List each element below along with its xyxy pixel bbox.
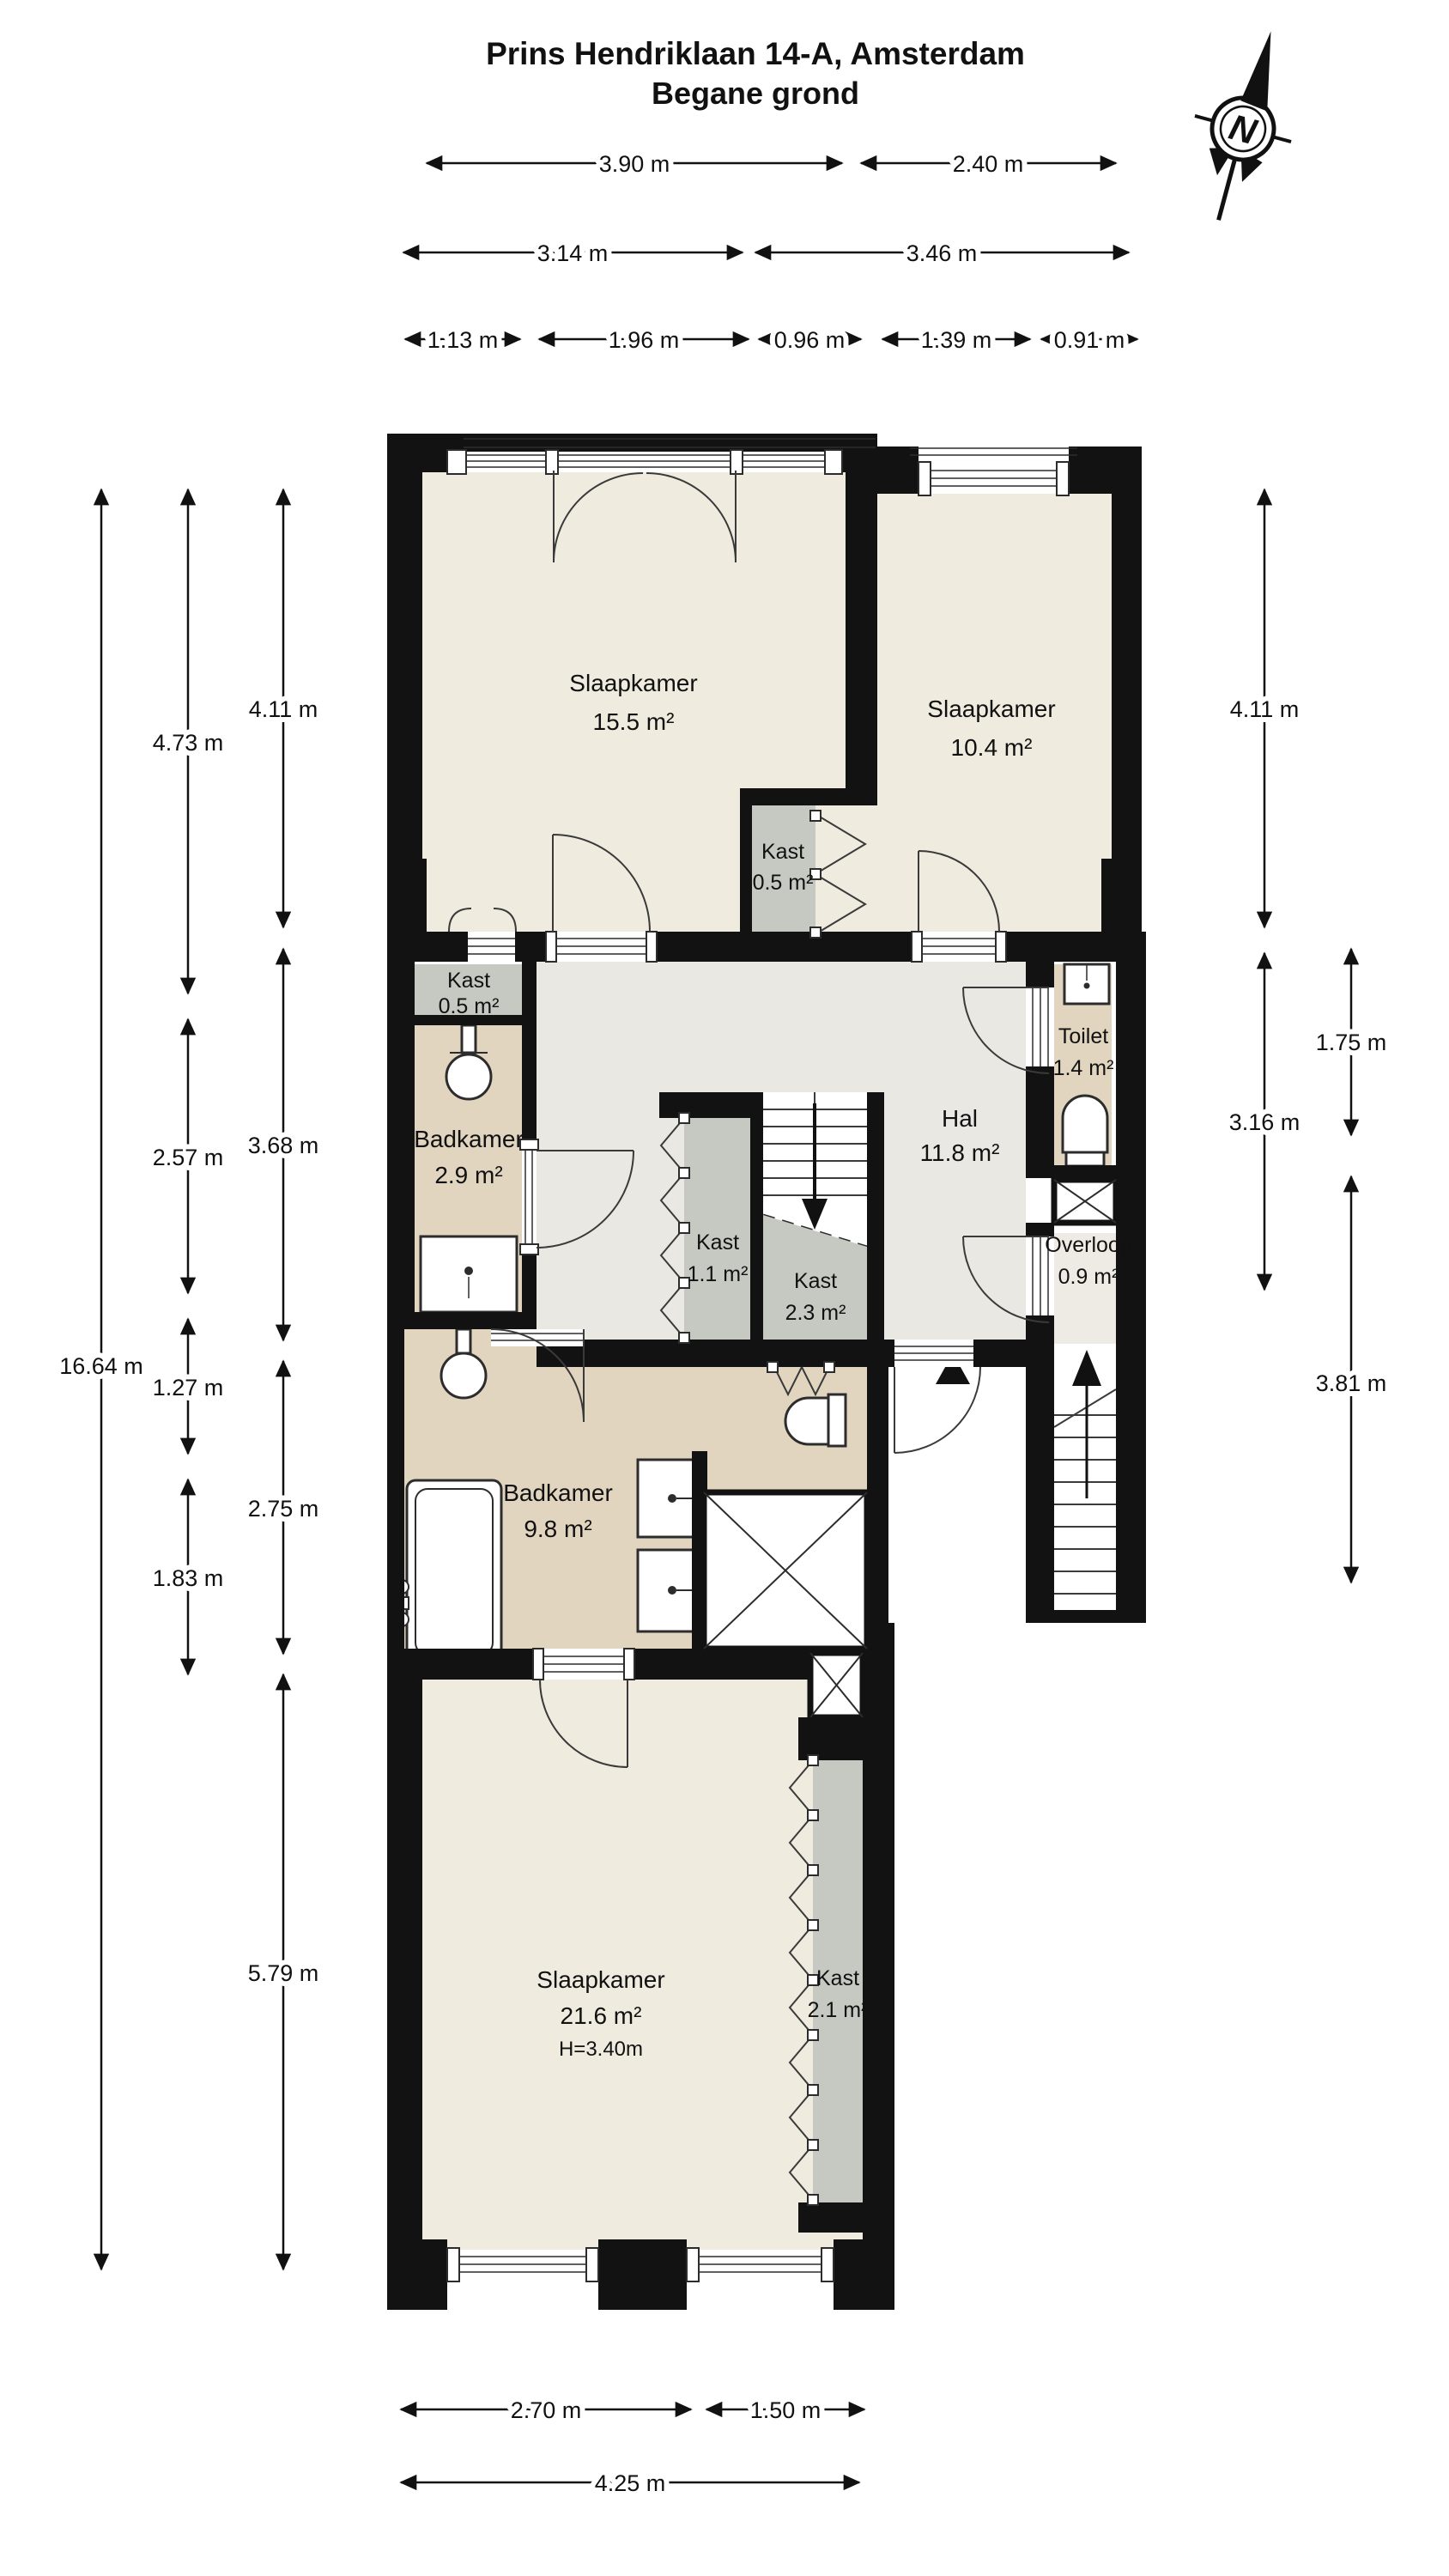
bathtub (407, 1480, 501, 1663)
label-kast-21: Kast (816, 1966, 859, 1990)
floor-kast-midden (752, 805, 815, 932)
label-toilet-area: 1.4 m² (1053, 1056, 1114, 1080)
dim-1664: 16.64 m (59, 1353, 143, 1379)
dim-314: 3.14 m (537, 240, 609, 266)
dim-390: 3.90 m (599, 151, 670, 177)
label-kast-midden-area: 0.5 m² (753, 871, 814, 895)
toilet-cistern (1066, 1152, 1104, 1166)
dim-139: 1.39 m (921, 327, 992, 353)
dim-183: 1.83 m (153, 1565, 224, 1591)
basin-bk98 (441, 1353, 486, 1398)
dim-411-r: 4.11 m (1230, 696, 1300, 722)
label-slaapkamer-rechts: Slaapkamer (927, 696, 1055, 722)
dim-346: 3.46 m (906, 240, 978, 266)
label-toilet: Toilet (1058, 1024, 1108, 1048)
label-kast-21-area: 2.1 m² (808, 1998, 869, 2022)
dim-196: 1.96 m (609, 327, 680, 353)
toilet-bowl (1063, 1096, 1107, 1152)
dim-270: 2.70 m (511, 2397, 582, 2423)
floor-kast-11 (684, 1118, 750, 1340)
dim-381: 3.81 m (1316, 1370, 1387, 1396)
toilet-bk98-cistern (828, 1394, 846, 1446)
label-kast-midden: Kast (761, 840, 804, 864)
dim-411-l: 4.11 m (249, 696, 318, 722)
dim-127: 1.27 m (153, 1375, 224, 1400)
dim-473: 4.73 m (153, 730, 224, 756)
dim-240: 2.40 m (953, 151, 1024, 177)
toilet-bk98 (785, 1398, 828, 1444)
page-subtitle: Begane grond (652, 76, 859, 111)
label-slaapkamer-rechts-area: 10.4 m² (951, 734, 1033, 761)
dim-150: 1.50 m (750, 2397, 822, 2423)
dim-113: 1.13 m (427, 327, 499, 353)
dim-368: 3.68 m (248, 1133, 319, 1158)
title-block: Prins Hendriklaan 14-A, Amsterdam Begane… (486, 36, 1025, 111)
label-slaapkamer-voor: Slaapkamer (569, 670, 697, 696)
dim-257: 2.57 m (153, 1145, 224, 1170)
label-kast-11-area: 1.1 m² (688, 1262, 749, 1286)
label-overloop-area: 0.9 m² (1058, 1265, 1119, 1289)
label-overloop: Overloop (1045, 1233, 1131, 1257)
basin-stem-bk29 (462, 1025, 476, 1053)
label-badkamer-groot-area: 9.8 m² (524, 1516, 591, 1542)
label-kast-links-area: 0.5 m² (439, 994, 500, 1018)
label-slaapkamer-achter: Slaapkamer (537, 1966, 664, 1993)
label-badkamer-klein: Badkamer (414, 1126, 524, 1152)
floorplan-page: Prins Hendriklaan 14-A, Amsterdam Begane… (0, 0, 1449, 2576)
label-kast-links: Kast (447, 969, 490, 993)
compass-icon: N (1171, 18, 1318, 233)
label-kast-23-area: 2.3 m² (785, 1301, 846, 1325)
page-title: Prins Hendriklaan 14-A, Amsterdam (486, 36, 1025, 71)
basin-stem-bk98 (457, 1329, 470, 1353)
floorplan-canvas: Prins Hendriklaan 14-A, Amsterdam Begane… (0, 0, 1449, 2576)
label-hal-area: 11.8 m² (920, 1139, 1000, 1166)
dim-316: 3.16 m (1229, 1109, 1300, 1135)
floor-landing (888, 1367, 1026, 1610)
dim-579: 5.79 m (248, 1960, 319, 1986)
dim-096: 0.96 m (774, 327, 846, 353)
dim-175: 1.75 m (1316, 1030, 1387, 1055)
dim-275: 2.75 m (248, 1496, 319, 1522)
label-badkamer-groot: Badkamer (503, 1479, 613, 1506)
label-kast-23: Kast (794, 1269, 837, 1293)
label-slaapkamer-achter-area: 21.6 m² (561, 2002, 642, 2029)
label-hal: Hal (942, 1105, 978, 1132)
label-kast-11: Kast (696, 1230, 739, 1255)
basin-bk29 (446, 1054, 491, 1099)
dim-091: 0.91 m (1054, 327, 1125, 353)
label-slaapkamer-achter-height: H=3.40m (559, 2038, 643, 2061)
dim-425: 4.25 m (595, 2470, 666, 2496)
label-badkamer-klein-area: 2.9 m² (434, 1162, 502, 1188)
label-slaapkamer-voor-area: 15.5 m² (593, 708, 675, 735)
